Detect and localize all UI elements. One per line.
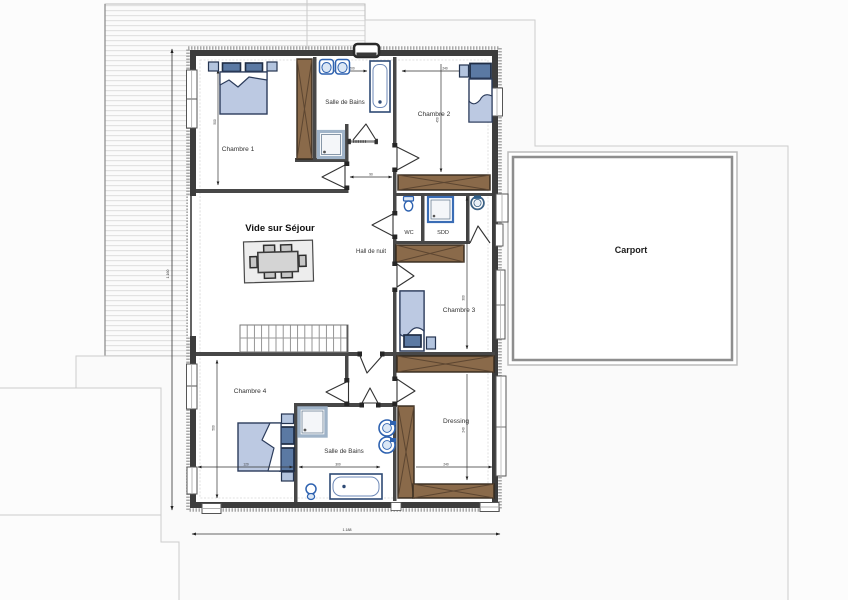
svg-text:500: 500 (213, 119, 217, 125)
svg-text:300: 300 (335, 463, 341, 467)
svg-text:450: 450 (436, 117, 440, 123)
svg-text:SDD: SDD (437, 230, 449, 236)
svg-text:Chambre 4: Chambre 4 (234, 388, 267, 395)
svg-text:1.188: 1.188 (343, 528, 352, 532)
svg-text:500: 500 (212, 425, 216, 431)
svg-text:Vide sur Séjour: Vide sur Séjour (245, 223, 315, 234)
svg-text:90: 90 (369, 173, 373, 177)
svg-text:Chambre 1: Chambre 1 (222, 146, 255, 153)
svg-text:Chambre 2: Chambre 2 (418, 111, 451, 118)
svg-text:Salle de Bains: Salle de Bains (324, 448, 364, 455)
svg-text:Dressing: Dressing (443, 418, 469, 425)
svg-text:Salle de Bains: Salle de Bains (325, 99, 365, 106)
svg-text:Chambre 3: Chambre 3 (443, 307, 476, 314)
svg-text:Carport: Carport (615, 245, 648, 255)
svg-text:1.160: 1.160 (166, 270, 170, 279)
svg-text:120: 120 (243, 463, 249, 467)
svg-text:300: 300 (462, 295, 466, 301)
svg-text:Hall de nuit: Hall de nuit (356, 249, 386, 255)
svg-text:240: 240 (462, 427, 466, 433)
svg-text:240: 240 (442, 67, 448, 71)
svg-text:240: 240 (443, 463, 449, 467)
svg-text:WC: WC (404, 230, 413, 236)
